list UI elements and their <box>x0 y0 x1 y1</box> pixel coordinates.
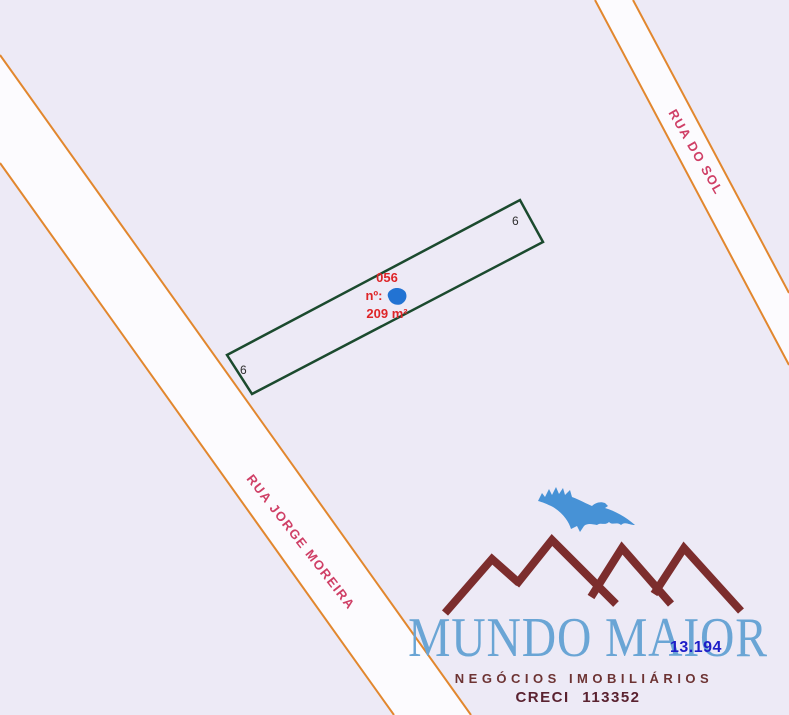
eagle-icon <box>538 487 635 532</box>
lot-info-block: 056 nº: 209 m² <box>365 271 408 322</box>
mountain-peak <box>516 540 616 604</box>
lot-marker-shape <box>388 288 407 305</box>
lot-number-label: nº: <box>365 289 382 304</box>
logo-subtitle: NEGÓCIOS IMOBILIÁRIOS <box>455 671 713 686</box>
street-edge-line <box>0 55 471 715</box>
mountains-icon <box>445 540 741 613</box>
lot-corner-label: 6 <box>512 214 519 228</box>
eagle-silhouette <box>538 487 635 532</box>
lot-corner-label: 6 <box>240 363 247 377</box>
street-edge-line <box>633 0 789 293</box>
lot-marker-icon <box>387 287 409 306</box>
mountain-peak <box>445 559 519 613</box>
logo-creci-number: CRECI 113352 <box>515 689 640 706</box>
street-edge-line <box>595 0 789 365</box>
map-canvas[interactable]: RUA DO SOL RUA JORGE MOREIRA 6 6 056 nº:… <box>0 0 789 715</box>
logo-title: MUNDO MAIOR <box>408 610 768 666</box>
lot-code: 056 <box>376 271 398 286</box>
street-edge-line <box>0 163 394 715</box>
map-overlay-number: 13.194 <box>670 639 722 657</box>
lot-area: 209 m² <box>366 307 407 322</box>
